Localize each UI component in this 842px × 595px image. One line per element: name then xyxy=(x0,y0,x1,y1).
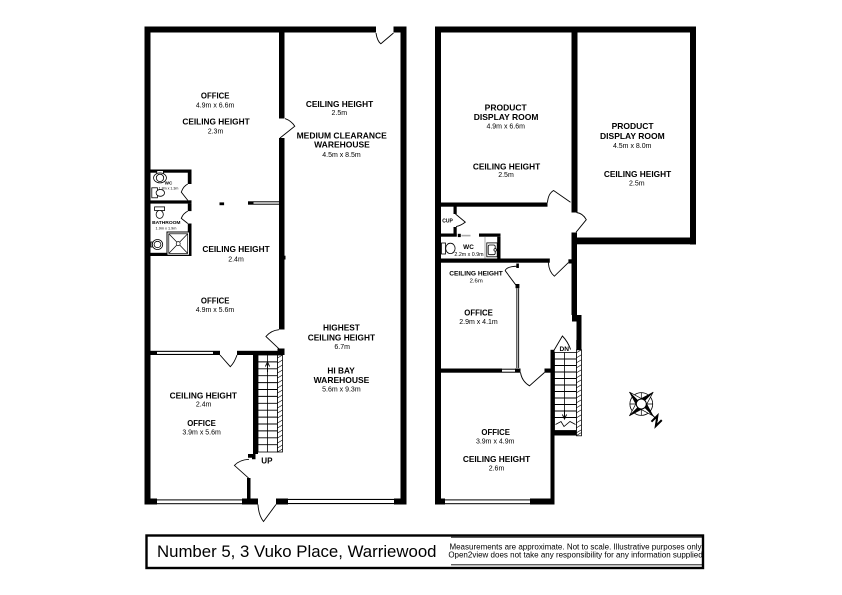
svg-text:BATHROOM: BATHROOM xyxy=(152,220,180,226)
svg-text:Number 5, 3 Vuko Place, Warrie: Number 5, 3 Vuko Place, Warriewood xyxy=(157,542,437,561)
svg-text:4.9m x 6.6m: 4.9m x 6.6m xyxy=(486,124,525,131)
svg-text:3.9m x 4.9m: 3.9m x 4.9m xyxy=(476,439,515,446)
svg-text:CEILING HEIGHT: CEILING HEIGHT xyxy=(473,161,540,171)
svg-text:DN: DN xyxy=(560,346,570,353)
svg-text:4.5m x 8.0m: 4.5m x 8.0m xyxy=(613,143,652,150)
svg-text:OFFICE: OFFICE xyxy=(481,428,510,437)
svg-text:2.4m: 2.4m xyxy=(196,402,212,409)
svg-text:HIGHEST: HIGHEST xyxy=(323,323,360,333)
svg-text:WAREHOUSE: WAREHOUSE xyxy=(314,375,370,385)
svg-text:2.5m: 2.5m xyxy=(629,181,645,188)
svg-text:2.6m: 2.6m xyxy=(470,278,483,284)
svg-text:CEILING HEIGHT: CEILING HEIGHT xyxy=(463,454,530,464)
svg-text:OFFICE: OFFICE xyxy=(187,419,216,428)
svg-text:CEILING HEIGHT: CEILING HEIGHT xyxy=(306,99,373,109)
svg-text:4.9m x 5.6m: 4.9m x 5.6m xyxy=(196,307,235,314)
svg-text:CEILING HEIGHT: CEILING HEIGHT xyxy=(170,390,237,400)
svg-text:5.6m x 9.3m: 5.6m x 9.3m xyxy=(322,387,361,394)
svg-text:DISPLAY ROOM: DISPLAY ROOM xyxy=(474,112,539,122)
svg-text:4.5m x 8.5m: 4.5m x 8.5m xyxy=(322,152,361,159)
svg-text:2.5m: 2.5m xyxy=(498,172,514,179)
svg-text:CEILING HEIGHT: CEILING HEIGHT xyxy=(604,169,671,179)
svg-text:1.8m x 1.3m: 1.8m x 1.3m xyxy=(159,186,179,190)
svg-text:WAREHOUSE: WAREHOUSE xyxy=(314,140,370,150)
svg-text:CUP: CUP xyxy=(442,219,453,225)
svg-text:OFFICE: OFFICE xyxy=(201,92,230,101)
svg-text:Open2view does not take any re: Open2view does not take any responsibili… xyxy=(448,550,702,559)
svg-text:2.4m: 2.4m xyxy=(228,256,244,263)
svg-text:OFFICE: OFFICE xyxy=(201,296,230,305)
svg-text:WC: WC xyxy=(165,180,173,185)
svg-text:UP: UP xyxy=(261,457,273,466)
svg-text:CEILING HEIGHT: CEILING HEIGHT xyxy=(308,333,375,343)
svg-text:4.9m x 6.6m: 4.9m x 6.6m xyxy=(196,103,235,110)
svg-text:3.9m x 5.6m: 3.9m x 5.6m xyxy=(182,430,221,437)
svg-text:2.6m: 2.6m xyxy=(489,466,505,473)
svg-text:6.7m: 6.7m xyxy=(334,344,350,351)
svg-text:OFFICE: OFFICE xyxy=(464,309,493,318)
svg-text:PRODUCT: PRODUCT xyxy=(612,121,655,131)
svg-text:2.2m x 0.9m: 2.2m x 0.9m xyxy=(454,252,484,258)
svg-text:CEILING HEIGHT: CEILING HEIGHT xyxy=(182,116,249,126)
svg-text:DISPLAY ROOM: DISPLAY ROOM xyxy=(600,131,665,141)
svg-text:2.3m: 2.3m xyxy=(208,128,224,135)
svg-text:1.9m x 1.9m: 1.9m x 1.9m xyxy=(156,226,177,230)
svg-text:CEILING HEIGHT: CEILING HEIGHT xyxy=(449,271,502,278)
svg-text:WC: WC xyxy=(463,244,474,251)
svg-text:2.9m x 4.1m: 2.9m x 4.1m xyxy=(459,319,498,326)
svg-text:2.5m: 2.5m xyxy=(332,110,348,117)
svg-text:CEILING HEIGHT: CEILING HEIGHT xyxy=(202,244,269,254)
